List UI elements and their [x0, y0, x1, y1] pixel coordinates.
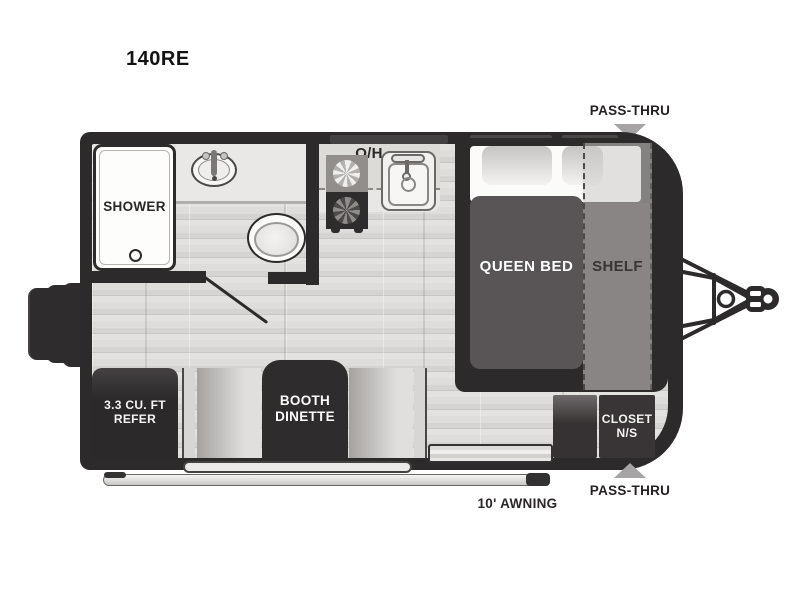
sink-drain-icon [401, 177, 416, 192]
bathroom-wall [90, 271, 206, 283]
awning-end-cap [526, 473, 550, 486]
refrigerator-label: 3.3 CU. FT REFER [92, 368, 178, 458]
burner-icon [333, 197, 360, 224]
cooktop-foot [331, 229, 340, 233]
cooktop [326, 155, 368, 192]
dinette-bench [197, 368, 261, 458]
shower-label: SHOWER [96, 199, 173, 214]
queen-bed [470, 196, 583, 369]
burner-icon [333, 160, 360, 187]
floorplan-diagram: 140RE PASS-THRU SHOWER [0, 0, 800, 600]
toilet-bowl [254, 222, 299, 257]
closet-label: CLOSET N/S [599, 395, 655, 458]
awning-end-cap [104, 472, 126, 478]
faucet-knob-icon [220, 152, 228, 160]
dinette-end-panel [414, 368, 427, 458]
shower-stall: SHOWER [93, 144, 176, 271]
awning-bar [103, 474, 550, 486]
faucet-knob-icon [202, 152, 210, 160]
bumper [28, 288, 56, 360]
dinette-label: BOOTH DINETTE [262, 360, 348, 458]
pillow [482, 146, 552, 185]
dinette-bench [349, 368, 413, 458]
entry-door [428, 444, 553, 463]
bathroom-faucet-icon [211, 150, 217, 176]
model-title: 140RE [126, 48, 190, 71]
shelf-label: SHELF [583, 258, 652, 275]
bathroom-wall [306, 138, 319, 285]
step-rail [183, 461, 412, 473]
wardrobe [553, 395, 597, 458]
kitchen-window [330, 135, 448, 144]
awning-label: 10' AWNING [440, 496, 595, 511]
cooktop [326, 192, 368, 229]
pass-thru-arrow-bottom-icon [614, 463, 646, 478]
dinette-end-panel [182, 368, 195, 458]
cooktop-foot [354, 229, 363, 233]
pass-thru-label-bottom: PASS-THRU [560, 483, 700, 498]
queen-bed-label: QUEEN BED [470, 258, 583, 275]
pass-thru-label-top: PASS-THRU [560, 103, 700, 118]
shower-drain-icon [129, 249, 142, 262]
sink-drain-icon [212, 176, 217, 181]
